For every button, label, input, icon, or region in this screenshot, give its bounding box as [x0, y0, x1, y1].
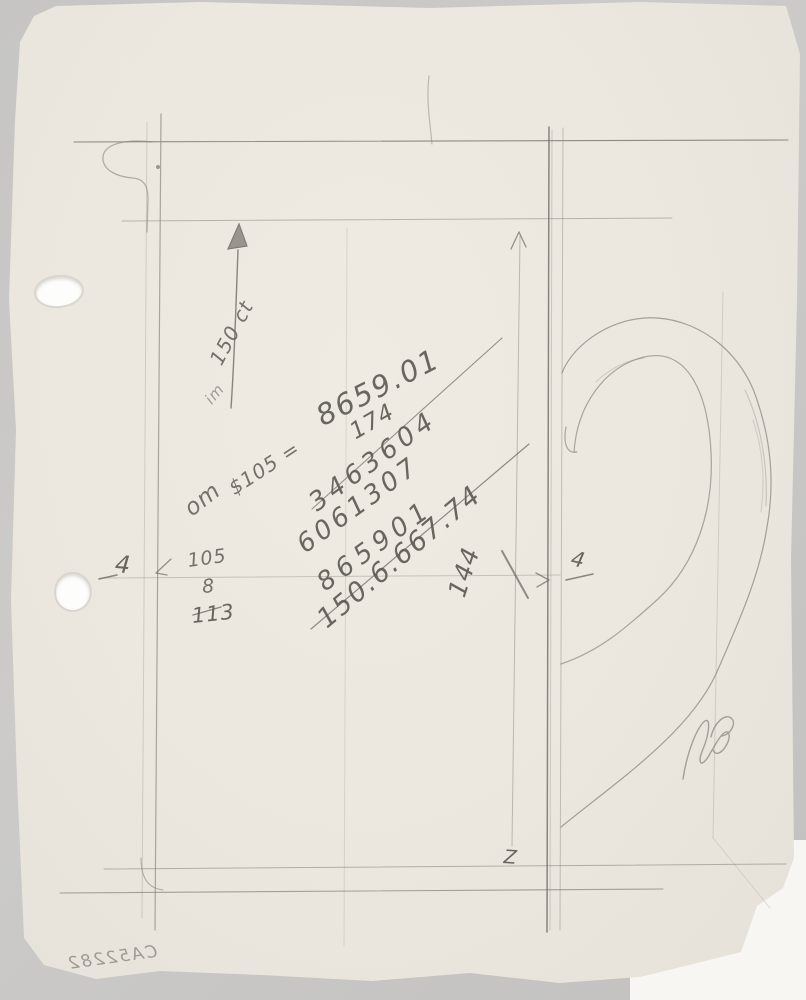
pencil-strokes [0, 0, 806, 1000]
guide-vertical-right-echo [550, 130, 552, 930]
cursive-scribble [683, 717, 733, 779]
handle-retrace-3 [596, 358, 644, 382]
guide-vertical-far-right [713, 292, 723, 838]
right-four-underline [566, 574, 593, 580]
guide-horizontal-lower [104, 864, 786, 869]
corner-fillet [141, 858, 163, 890]
guide-vertical-right [547, 127, 549, 932]
large-arrow-head [228, 224, 247, 249]
stray-stroke-top [428, 76, 432, 144]
handle-inner-curve [561, 356, 711, 664]
guide-diagonal-corner [713, 838, 770, 908]
pencil-blotch [156, 165, 160, 169]
dimension-line-vertical [512, 236, 520, 846]
guide-horizontal-upper [122, 218, 672, 221]
guide-horizontal-top [74, 140, 788, 142]
scanned-sketch-page: 150 ct im om $105 = 8659.01 174 3463604 … [0, 0, 806, 1000]
dimension-arrow-head [511, 232, 526, 249]
guide-horizontal-bottom [60, 889, 663, 893]
handle-retrace-2 [753, 420, 763, 512]
guide-vertical-left-inner [142, 122, 147, 918]
addition-top: 105 [186, 547, 228, 571]
guide-vertical-right-outer [560, 128, 563, 930]
left-dimension-tick-label: 4 [114, 552, 132, 577]
guide-vertical-left [155, 114, 161, 930]
addition-addend: 8 [201, 577, 216, 597]
moulding-profile-hook [103, 141, 152, 232]
addition-sum: 113 [191, 602, 236, 627]
bottom-marker: Z [503, 848, 518, 868]
